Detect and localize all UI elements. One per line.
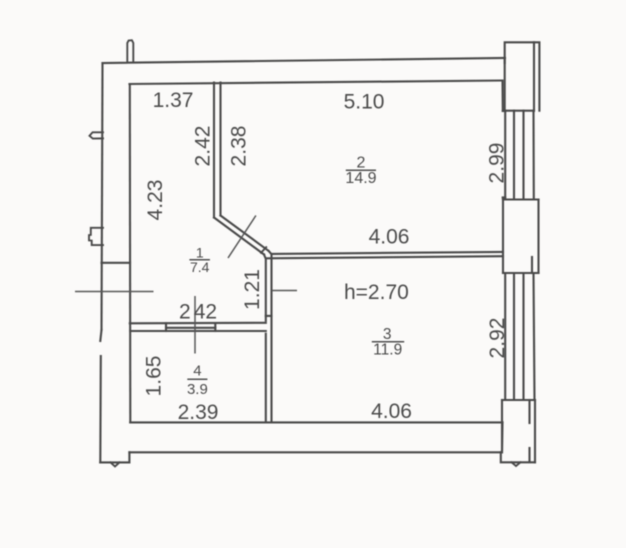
svg-text:1.21: 1.21 — [241, 269, 264, 310]
svg-text:4.23: 4.23 — [144, 180, 167, 221]
svg-text:2.38: 2.38 — [228, 126, 251, 167]
svg-text:3: 3 — [383, 326, 392, 343]
svg-text:5.10: 5.10 — [344, 91, 385, 114]
svg-text:42: 42 — [194, 301, 217, 324]
svg-text:1.37: 1.37 — [153, 89, 194, 112]
svg-text:2.99: 2.99 — [486, 143, 509, 184]
svg-text:2.92: 2.92 — [486, 318, 509, 359]
svg-text:1.65: 1.65 — [143, 356, 166, 397]
svg-text:2: 2 — [357, 154, 366, 171]
svg-text:4.06: 4.06 — [371, 400, 412, 423]
svg-text:7.4: 7.4 — [190, 259, 210, 275]
svg-text:2.39: 2.39 — [178, 401, 219, 424]
svg-text:3.9: 3.9 — [187, 381, 208, 398]
svg-text:4.06: 4.06 — [369, 226, 410, 249]
svg-text:4: 4 — [193, 363, 201, 380]
svg-text:2: 2 — [179, 301, 191, 324]
svg-text:h=2.70: h=2.70 — [344, 281, 409, 304]
svg-text:2.42: 2.42 — [192, 126, 215, 167]
svg-text:14.9: 14.9 — [345, 170, 376, 187]
svg-text:11.9: 11.9 — [373, 342, 402, 359]
